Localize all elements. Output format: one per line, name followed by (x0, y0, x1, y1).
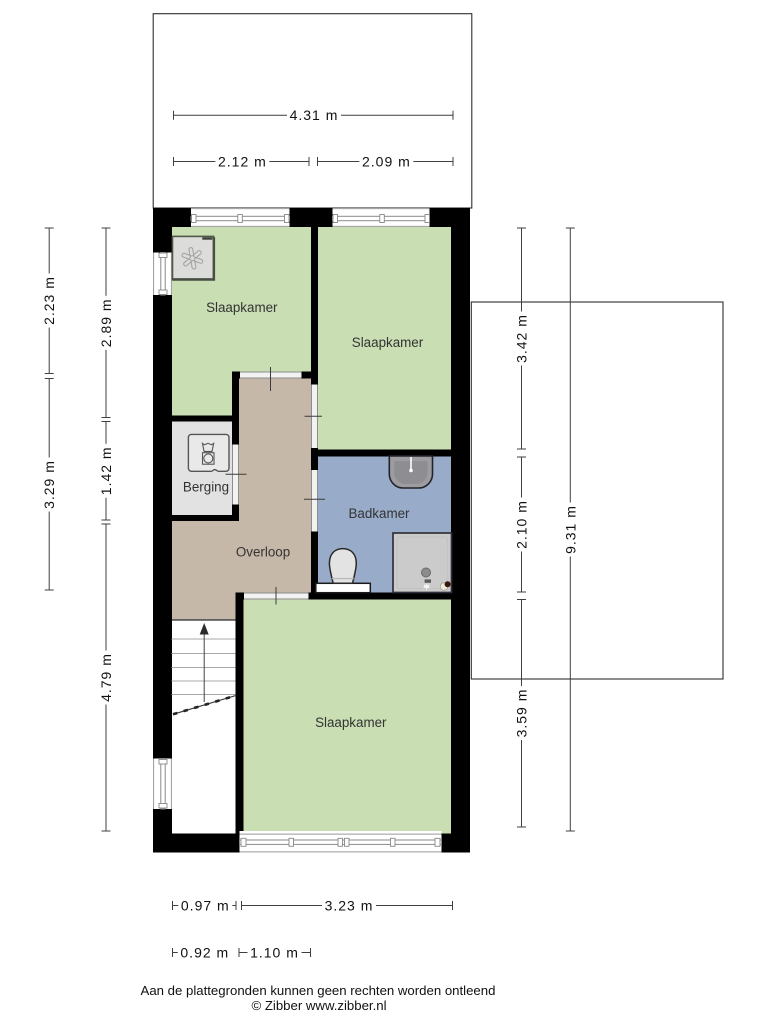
svg-text:1.10 m: 1.10 m (250, 945, 299, 961)
svg-text:Slaapkamer: Slaapkamer (315, 715, 387, 730)
svg-text:2.10 m: 2.10 m (514, 500, 530, 549)
svg-text:0.97 m: 0.97 m (181, 898, 230, 914)
svg-text:9.31 m: 9.31 m (562, 505, 578, 554)
svg-text:2.89 m: 2.89 m (98, 298, 114, 347)
svg-text:Slaapkamer: Slaapkamer (352, 335, 424, 350)
svg-text:4.79 m: 4.79 m (98, 653, 114, 702)
svg-text:2.23 m: 2.23 m (41, 276, 57, 325)
svg-text:© Zibber www.zibber.nl: © Zibber www.zibber.nl (251, 998, 386, 1013)
svg-text:Berging: Berging (183, 480, 229, 495)
svg-text:4.31 m: 4.31 m (290, 107, 339, 123)
svg-text:3.29 m: 3.29 m (41, 460, 57, 509)
svg-text:0.92 m: 0.92 m (180, 945, 229, 961)
svg-text:1.42 m: 1.42 m (98, 446, 114, 495)
svg-text:3.23 m: 3.23 m (325, 898, 374, 914)
svg-text:2.12 m: 2.12 m (218, 154, 267, 170)
svg-text:Overloop: Overloop (236, 545, 290, 560)
svg-text:Slaapkamer: Slaapkamer (206, 300, 278, 315)
svg-text:3.42 m: 3.42 m (514, 314, 530, 363)
svg-text:Aan de plattegronden kunnen ge: Aan de plattegronden kunnen geen rechten… (141, 983, 496, 998)
svg-text:3.59 m: 3.59 m (514, 689, 530, 738)
svg-text:Badkamer: Badkamer (348, 506, 410, 521)
svg-text:2.09 m: 2.09 m (362, 154, 411, 170)
